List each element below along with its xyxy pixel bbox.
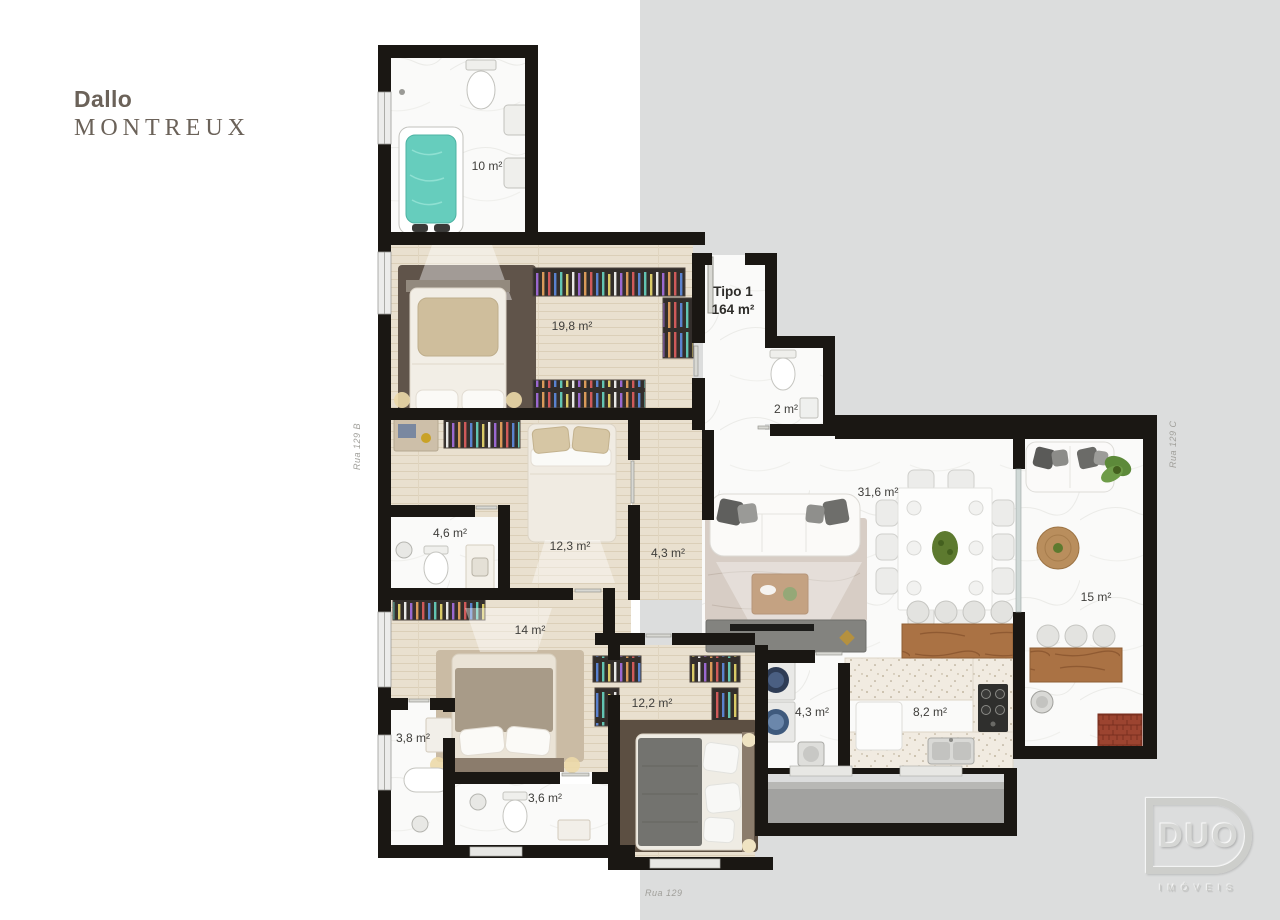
service-balcony-edge	[768, 782, 1013, 789]
bar-counter	[902, 624, 1013, 658]
shower-head	[412, 816, 428, 832]
bedside-lamp	[506, 392, 522, 408]
toilet	[770, 350, 796, 390]
toilet	[503, 792, 527, 832]
bedside-lamp	[742, 839, 756, 853]
bar-stool	[935, 601, 957, 623]
duo-logo: DUO IMÓVEIS	[1141, 798, 1257, 893]
door-leaf	[646, 634, 671, 637]
fridge	[856, 702, 902, 750]
bedside-lamp	[742, 733, 756, 747]
window	[378, 612, 391, 687]
door-leaf	[758, 426, 769, 429]
room-label-laundry: 4,3 m²	[795, 705, 829, 719]
dresser	[394, 419, 438, 451]
vanity-sink	[558, 820, 590, 840]
room-label-bath-master: 10 m²	[472, 159, 503, 173]
duo-logo-text: DUO	[1158, 817, 1240, 856]
double-sink	[928, 738, 974, 764]
room-label-wc: 2 m²	[774, 402, 798, 416]
bed-suite-4	[636, 732, 756, 853]
duo-logo-box: DUO	[1146, 798, 1252, 874]
window	[378, 735, 391, 790]
window	[378, 252, 391, 314]
bar-stool	[1037, 625, 1059, 647]
bar-stool	[991, 601, 1013, 623]
bar-stool	[963, 601, 985, 623]
room-label-suite-3: 14 m²	[515, 623, 546, 637]
bar-stool	[1093, 625, 1115, 647]
wardrobe	[690, 656, 740, 682]
laundry-sink	[798, 742, 824, 766]
door-leaf	[816, 652, 842, 655]
room-label-suite-4: 12,2 m²	[632, 696, 673, 710]
shower-head	[396, 542, 412, 558]
room-floor-hallway	[632, 420, 702, 600]
room-label-bath-3: 3,8 m²	[396, 731, 430, 745]
shower-head	[399, 89, 405, 95]
room-label-bath-4: 3,6 m²	[528, 791, 562, 805]
sliding-door	[900, 766, 962, 776]
shower-head	[470, 794, 486, 810]
duo-logo-tagline: IMÓVEIS	[1141, 883, 1257, 893]
wardrobe	[533, 268, 685, 296]
sliding-door	[470, 847, 522, 856]
terrace-counter	[1030, 648, 1122, 682]
sliding-door	[650, 859, 720, 868]
room-label-suite-2: 12,3 m²	[550, 539, 591, 553]
unit-area-label: 164 m²	[712, 302, 755, 317]
door-leaf	[562, 773, 589, 776]
room-label-kitchen: 8,2 m²	[913, 705, 947, 719]
room-label-hallway: 4,3 m²	[651, 546, 685, 560]
bar-stool	[907, 601, 929, 623]
door-leaf	[694, 346, 698, 376]
toilet	[466, 60, 496, 109]
sofa	[710, 494, 860, 556]
sliding-door	[790, 766, 852, 776]
wardrobe	[444, 418, 520, 448]
terrace-loveseat	[1026, 442, 1114, 492]
room-label-suite-master: 19,8 m²	[552, 319, 593, 333]
stove	[978, 684, 1008, 732]
terrace-round-table	[1037, 527, 1079, 569]
bed-master	[394, 280, 522, 414]
door-leaf	[575, 589, 601, 592]
bedside-lamp	[394, 392, 410, 408]
bedside-lamp	[564, 757, 580, 773]
sink	[800, 398, 818, 418]
wardrobe	[533, 380, 645, 408]
bed-suite-2	[528, 424, 616, 542]
wardrobe	[663, 298, 693, 358]
window	[378, 92, 391, 144]
terrace-sink	[1031, 691, 1053, 713]
room-label-living: 31,6 m²	[858, 485, 899, 499]
glass-partition	[1016, 469, 1021, 612]
bathtub-jacuzzi	[399, 127, 463, 234]
centerpiece-plant	[932, 531, 958, 565]
room-label-terrace: 15 m²	[1081, 590, 1112, 604]
floorplan-svg: 10 m² 19,8 m² Tipo 1 164 m² 2 m² 12,3 m²…	[0, 0, 1280, 920]
room-label-bath-2: 4,6 m²	[433, 526, 467, 540]
unit-type-label: Tipo 1	[713, 284, 753, 299]
toilet	[424, 546, 448, 584]
floorplan-page: Dallo MONTREUX Rua 129 B Rua 129 C Rua 1…	[0, 0, 1280, 920]
door-leaf	[409, 699, 429, 702]
tv	[730, 624, 814, 631]
door-leaf	[631, 461, 634, 503]
vanity-sink	[466, 545, 494, 591]
bar-stool	[1065, 625, 1087, 647]
door-leaf	[476, 506, 497, 509]
